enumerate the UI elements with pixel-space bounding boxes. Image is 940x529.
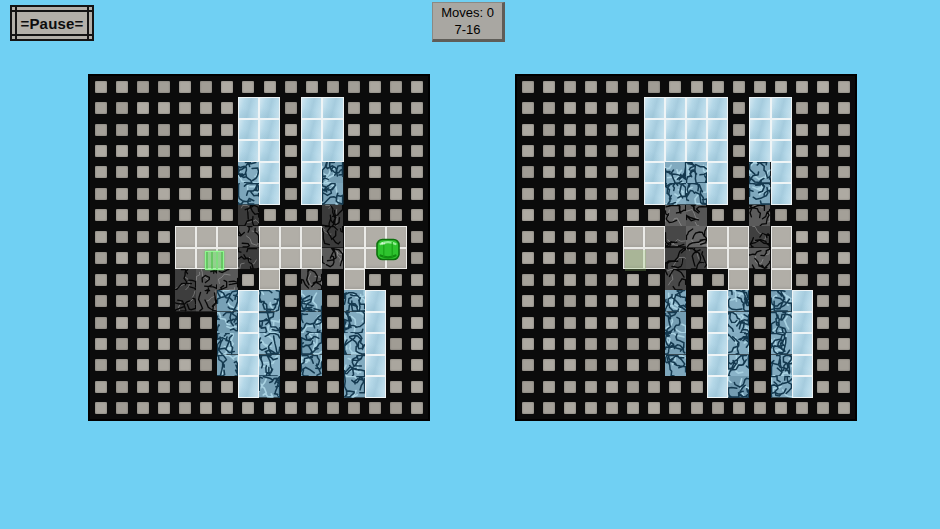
wall-cell: [580, 140, 601, 161]
puzzle-board-right[interactable]: [515, 74, 857, 421]
wall-brick: [543, 145, 555, 157]
wall-brick: [95, 338, 107, 350]
wall-cell: [517, 226, 538, 247]
wall-brick: [390, 145, 402, 157]
wall-cell: [644, 76, 665, 97]
wall-brick: [522, 402, 534, 414]
wall-brick: [200, 359, 212, 371]
wall-brick: [585, 317, 597, 329]
wall-brick: [817, 188, 829, 200]
wall-brick: [733, 188, 745, 200]
ice-cell: [686, 97, 707, 118]
wall-brick: [648, 402, 660, 414]
wall-brick: [348, 124, 360, 136]
wall-cell: [386, 269, 407, 290]
rock-cell: [217, 269, 238, 290]
wall-cell: [602, 312, 623, 333]
ice-cell: [238, 119, 259, 140]
wall-brick: [411, 231, 423, 243]
wall-cell: [132, 76, 153, 97]
wall-cell: [623, 183, 644, 204]
wall-cell: [792, 76, 813, 97]
wall-cell: [623, 97, 644, 118]
wall-cell: [217, 376, 238, 397]
wall-cell: [132, 162, 153, 183]
floor-cell: [771, 226, 792, 247]
wall-brick: [627, 166, 639, 178]
floor-cell: [175, 248, 196, 269]
ice-cell: [771, 97, 792, 118]
wall-cell: [707, 205, 728, 226]
wall-cell: [580, 312, 601, 333]
cracked-ice-cell: [686, 183, 707, 204]
wall-brick: [648, 81, 660, 93]
wall-cell: [280, 376, 301, 397]
wall-cell: [386, 205, 407, 226]
wall-brick: [179, 359, 191, 371]
wall-brick: [200, 317, 212, 329]
wall-cell: [749, 290, 770, 311]
wall-cell: [517, 248, 538, 269]
ice-cell: [238, 355, 259, 376]
wall-cell: [365, 140, 386, 161]
wall-cell: [538, 119, 559, 140]
wall-brick: [691, 274, 703, 286]
wall-cell: [538, 290, 559, 311]
wall-brick: [285, 166, 297, 178]
wall-brick: [585, 166, 597, 178]
wall-cell: [813, 312, 834, 333]
wall-cell: [153, 119, 174, 140]
wall-cell: [365, 398, 386, 419]
cracked-ice-cell: [771, 376, 792, 397]
wall-cell: [386, 312, 407, 333]
wall-cell: [386, 183, 407, 204]
wall-brick: [838, 359, 850, 371]
wall-brick: [564, 102, 576, 114]
wall-cell: [623, 119, 644, 140]
wall-cell: [580, 205, 601, 226]
ice-cell: [792, 355, 813, 376]
wall-cell: [559, 140, 580, 161]
wall-brick: [411, 124, 423, 136]
ice-cell: [771, 183, 792, 204]
wall-brick: [390, 317, 402, 329]
wall-cell: [580, 269, 601, 290]
cracked-ice-cell: [665, 355, 686, 376]
wall-cell: [280, 183, 301, 204]
wall-brick: [838, 231, 850, 243]
pause-button[interactable]: =Pause=: [10, 5, 94, 41]
wall-brick: [116, 381, 128, 393]
wall-brick: [606, 209, 618, 221]
wall-cell: [538, 269, 559, 290]
cracked-ice-cell: [749, 162, 770, 183]
wall-brick: [817, 402, 829, 414]
wall-brick: [285, 209, 297, 221]
wall-brick: [158, 381, 170, 393]
wall-brick: [585, 209, 597, 221]
wall-cell: [792, 269, 813, 290]
wall-brick: [137, 166, 149, 178]
wall-cell: [580, 97, 601, 118]
wall-brick: [390, 381, 402, 393]
wall-cell: [386, 355, 407, 376]
wall-brick: [179, 81, 191, 93]
wall-cell: [344, 162, 365, 183]
wall-cell: [749, 398, 770, 419]
wall-brick: [775, 402, 787, 414]
wall-cell: [580, 333, 601, 354]
wall-brick: [95, 317, 107, 329]
wall-cell: [280, 97, 301, 118]
player-gem[interactable]: [375, 236, 401, 263]
wall-brick: [158, 81, 170, 93]
ice-cell: [749, 119, 770, 140]
wall-brick: [221, 166, 233, 178]
wall-cell: [559, 76, 580, 97]
wall-cell: [517, 183, 538, 204]
wall-brick: [817, 274, 829, 286]
wall-cell: [365, 97, 386, 118]
wall-brick: [522, 295, 534, 307]
wall-brick: [585, 145, 597, 157]
wall-brick: [522, 231, 534, 243]
wall-brick: [137, 402, 149, 414]
wall-brick: [116, 81, 128, 93]
ice-cell: [322, 119, 343, 140]
wall-brick: [691, 295, 703, 307]
wall-cell: [623, 398, 644, 419]
wall-cell: [623, 76, 644, 97]
wall-brick: [796, 124, 808, 136]
wall-cell: [153, 76, 174, 97]
wall-cell: [559, 312, 580, 333]
wall-cell: [153, 205, 174, 226]
cracked-ice-cell: [728, 333, 749, 354]
wall-cell: [217, 398, 238, 419]
wall-brick: [648, 381, 660, 393]
wall-brick: [411, 381, 423, 393]
wall-brick: [200, 209, 212, 221]
wall-cell: [322, 355, 343, 376]
wall-brick: [606, 188, 618, 200]
wall-brick: [390, 338, 402, 350]
floor-cell: [728, 226, 749, 247]
wall-brick: [691, 338, 703, 350]
wall-brick: [285, 145, 297, 157]
floor-cell: [259, 226, 280, 247]
wall-brick: [564, 295, 576, 307]
wall-brick: [691, 81, 703, 93]
wall-cell: [559, 248, 580, 269]
rock-cell: [322, 226, 343, 247]
wall-cell: [407, 140, 428, 161]
wall-cell: [517, 205, 538, 226]
wall-cell: [834, 376, 855, 397]
wall-brick: [606, 124, 618, 136]
wall-brick: [285, 359, 297, 371]
wall-brick: [796, 402, 808, 414]
wall-cell: [538, 162, 559, 183]
wall-brick: [606, 402, 618, 414]
wall-cell: [559, 205, 580, 226]
wall-brick: [116, 231, 128, 243]
wall-brick: [796, 102, 808, 114]
wall-brick: [606, 102, 618, 114]
wall-brick: [796, 81, 808, 93]
wall-cell: [602, 205, 623, 226]
wall-cell: [623, 312, 644, 333]
wall-cell: [196, 205, 217, 226]
wall-cell: [386, 376, 407, 397]
wall-cell: [686, 312, 707, 333]
wall-brick: [95, 252, 107, 264]
wall-cell: [728, 183, 749, 204]
wall-cell: [834, 398, 855, 419]
wall-brick: [285, 102, 297, 114]
wall-cell: [407, 205, 428, 226]
wall-cell: [111, 333, 132, 354]
wall-cell: [580, 119, 601, 140]
wall-cell: [559, 269, 580, 290]
wall-cell: [644, 290, 665, 311]
wall-cell: [90, 312, 111, 333]
wall-brick: [817, 252, 829, 264]
wall-cell: [132, 226, 153, 247]
wall-cell: [259, 205, 280, 226]
wall-cell: [749, 76, 770, 97]
wall-cell: [749, 333, 770, 354]
wall-brick: [137, 81, 149, 93]
wall-brick: [158, 209, 170, 221]
wall-cell: [834, 226, 855, 247]
wall-cell: [132, 312, 153, 333]
wall-cell: [344, 140, 365, 161]
wall-cell: [90, 205, 111, 226]
ice-cell: [238, 333, 259, 354]
wall-cell: [132, 248, 153, 269]
wall-brick: [95, 166, 107, 178]
wall-cell: [644, 355, 665, 376]
wall-cell: [344, 398, 365, 419]
floor-cell: [771, 248, 792, 269]
wall-brick: [221, 124, 233, 136]
wall-cell: [111, 119, 132, 140]
wall-cell: [792, 248, 813, 269]
wall-brick: [411, 209, 423, 221]
wall-brick: [95, 359, 107, 371]
wall-cell: [517, 269, 538, 290]
wall-cell: [580, 376, 601, 397]
cracked-ice-cell: [301, 355, 322, 376]
wall-cell: [132, 205, 153, 226]
wall-cell: [196, 97, 217, 118]
wall-brick: [369, 102, 381, 114]
wall-cell: [196, 183, 217, 204]
wall-brick: [733, 102, 745, 114]
ice-cell: [707, 376, 728, 397]
wall-brick: [817, 381, 829, 393]
ice-cell: [707, 119, 728, 140]
rock-cell: [322, 248, 343, 269]
wall-cell: [538, 97, 559, 118]
cracked-ice-cell: [344, 312, 365, 333]
wall-brick: [158, 124, 170, 136]
floor-cell: [196, 248, 217, 269]
wall-brick: [585, 102, 597, 114]
wall-brick: [390, 166, 402, 178]
wall-brick: [390, 295, 402, 307]
wall-brick: [200, 145, 212, 157]
wall-cell: [749, 376, 770, 397]
ice-cell: [771, 140, 792, 161]
wall-brick: [838, 295, 850, 307]
wall-brick: [564, 317, 576, 329]
wall-brick: [200, 166, 212, 178]
wall-brick: [543, 188, 555, 200]
wall-brick: [564, 338, 576, 350]
wall-cell: [407, 269, 428, 290]
rock-cell: [686, 205, 707, 226]
wall-cell: [686, 376, 707, 397]
wall-cell: [196, 140, 217, 161]
wall-cell: [728, 162, 749, 183]
floor-cell: [644, 226, 665, 247]
rock-cell: [749, 226, 770, 247]
ice-cell: [301, 119, 322, 140]
wall-brick: [221, 102, 233, 114]
wall-brick: [390, 274, 402, 286]
wall-cell: [728, 119, 749, 140]
ice-cell: [259, 119, 280, 140]
floor-cell: [280, 226, 301, 247]
wall-brick: [838, 381, 850, 393]
wall-brick: [264, 209, 276, 221]
wall-cell: [238, 398, 259, 419]
wall-cell: [538, 226, 559, 247]
cracked-ice-cell: [259, 312, 280, 333]
wall-brick: [754, 317, 766, 329]
wall-brick: [754, 402, 766, 414]
wall-brick: [411, 295, 423, 307]
wall-cell: [813, 355, 834, 376]
cracked-ice-cell: [665, 183, 686, 204]
wall-cell: [111, 162, 132, 183]
cracked-ice-cell: [665, 333, 686, 354]
wall-cell: [538, 76, 559, 97]
wall-brick: [158, 252, 170, 264]
wall-cell: [365, 205, 386, 226]
floor-cell: [771, 269, 792, 290]
wall-cell: [602, 248, 623, 269]
wall-brick: [221, 145, 233, 157]
wall-cell: [728, 76, 749, 97]
wall-cell: [153, 333, 174, 354]
rock-cell: [175, 290, 196, 311]
cracked-ice-cell: [238, 183, 259, 204]
wall-cell: [665, 376, 686, 397]
wall-brick: [200, 381, 212, 393]
ice-cell: [238, 312, 259, 333]
wall-cell: [559, 376, 580, 397]
wall-cell: [132, 183, 153, 204]
rock-cell: [175, 269, 196, 290]
wall-brick: [585, 359, 597, 371]
puzzle-board-left[interactable]: [88, 74, 430, 421]
wall-brick: [522, 188, 534, 200]
wall-brick: [817, 124, 829, 136]
wall-cell: [834, 205, 855, 226]
wall-cell: [538, 312, 559, 333]
wall-cell: [407, 97, 428, 118]
wall-brick: [158, 274, 170, 286]
wall-brick: [522, 145, 534, 157]
wall-cell: [153, 226, 174, 247]
ice-cell: [322, 97, 343, 118]
game-screen: =Pause= Moves: 0 7-16: [0, 0, 940, 529]
wall-brick: [522, 124, 534, 136]
wall-brick: [627, 124, 639, 136]
wall-cell: [90, 398, 111, 419]
wall-brick: [179, 381, 191, 393]
wall-brick: [137, 188, 149, 200]
wall-cell: [559, 398, 580, 419]
wall-brick: [712, 402, 724, 414]
wall-cell: [792, 183, 813, 204]
ice-cell: [238, 290, 259, 311]
wall-cell: [322, 312, 343, 333]
wall-cell: [834, 269, 855, 290]
wall-brick: [543, 317, 555, 329]
wall-cell: [175, 162, 196, 183]
ice-cell: [365, 376, 386, 397]
ice-cell: [792, 290, 813, 311]
wall-brick: [369, 145, 381, 157]
floor-cell: [301, 248, 322, 269]
wall-brick: [543, 102, 555, 114]
wall-brick: [285, 124, 297, 136]
wall-cell: [728, 97, 749, 118]
wall-brick: [606, 231, 618, 243]
floor-cell: [344, 248, 365, 269]
wall-cell: [175, 333, 196, 354]
wall-brick: [348, 188, 360, 200]
wall-cell: [153, 248, 174, 269]
wall-brick: [522, 317, 534, 329]
wall-brick: [179, 209, 191, 221]
wall-cell: [559, 355, 580, 376]
wall-brick: [137, 102, 149, 114]
wall-cell: [132, 398, 153, 419]
wall-cell: [602, 162, 623, 183]
wall-cell: [580, 76, 601, 97]
wall-brick: [817, 295, 829, 307]
wall-cell: [280, 269, 301, 290]
wall-cell: [407, 76, 428, 97]
wall-cell: [238, 269, 259, 290]
wall-brick: [796, 231, 808, 243]
wall-cell: [111, 398, 132, 419]
wall-cell: [517, 312, 538, 333]
wall-brick: [327, 295, 339, 307]
wall-brick: [411, 252, 423, 264]
wall-brick: [564, 381, 576, 393]
wall-cell: [517, 376, 538, 397]
rock-cell: [665, 269, 686, 290]
moves-count-label: Moves: 0: [441, 4, 494, 21]
wall-brick: [585, 81, 597, 93]
